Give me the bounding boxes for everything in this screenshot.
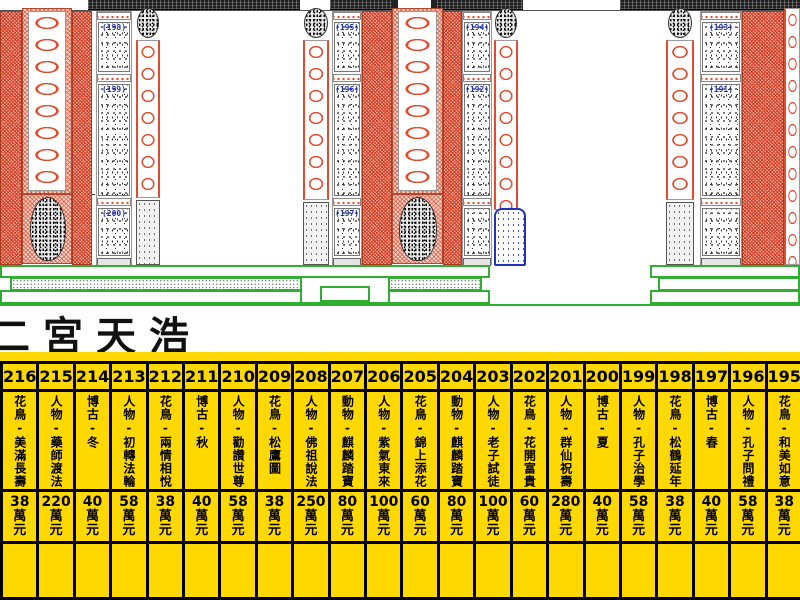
dot-separator: [333, 12, 361, 20]
empty-cell: [221, 544, 254, 591]
item-description: 人物-藥師渡法: [50, 392, 62, 489]
item-price: 80 萬 元: [440, 492, 473, 544]
price-unit-yuan: 元: [414, 524, 427, 538]
empty-cell: [695, 544, 728, 591]
dot-separator: [463, 12, 491, 20]
item-description-cell: 花鳥-美滿長壽: [3, 392, 36, 492]
price-unit-wan: 萬: [159, 510, 172, 524]
item-number: 216: [3, 364, 36, 392]
item-price: 80 萬 元: [331, 492, 364, 544]
item-number: 210: [221, 364, 254, 392]
top-beam: [620, 0, 800, 10]
item-description-cell: 花鳥-松鶴延年: [658, 392, 691, 492]
price-unit-wan: 萬: [523, 510, 536, 524]
carved-capital: [668, 8, 692, 38]
item-price: 280 萬 元: [549, 492, 582, 544]
price-unit-wan: 萬: [778, 510, 791, 524]
table-column: 201 人物-群仙祝壽 280 萬 元: [549, 364, 585, 597]
item-number: 208: [294, 364, 327, 392]
item-number: 206: [367, 364, 400, 392]
price-unit-yuan: 元: [741, 524, 754, 538]
price-number: 38: [665, 494, 684, 510]
empty-cell: [3, 544, 36, 591]
stone-base: [658, 277, 800, 291]
price-unit-yuan: 元: [705, 524, 718, 538]
empty-cell: [185, 544, 218, 591]
oval-chain: [303, 40, 329, 200]
item-price: 100 萬 元: [476, 492, 509, 544]
empty-cell: [258, 544, 291, 591]
panel-label: (197): [335, 209, 359, 219]
item-description-cell: 人物-初轉法輪: [112, 392, 145, 492]
oval-chain: [494, 40, 518, 210]
price-unit-yuan: 元: [523, 524, 536, 538]
price-unit-wan: 萬: [414, 510, 427, 524]
item-description-cell: 博古-秋: [185, 392, 218, 492]
price-number: 58: [629, 494, 648, 510]
price-unit-yuan: 元: [632, 524, 645, 538]
item-description-cell: 花鳥-松鷹圖: [258, 392, 291, 492]
dot-separator: [701, 12, 741, 20]
table-column: 216 花鳥-美滿長壽 38 萬 元: [3, 364, 39, 597]
dot-separator: [333, 74, 361, 82]
price-unit-wan: 萬: [486, 510, 499, 524]
price-unit-yuan: 元: [86, 524, 99, 538]
item-description: 人物-群仙祝壽: [560, 392, 572, 489]
price-unit-yuan: 元: [778, 524, 791, 538]
table-column: 214 博古-冬 40 萬 元: [76, 364, 112, 597]
oval-chain: [136, 40, 160, 198]
table-column: 215 人物-藥師渡法 220 萬 元: [39, 364, 75, 597]
price-unit-wan: 萬: [341, 510, 354, 524]
column-pedestal: [303, 202, 329, 265]
price-unit-yuan: 元: [13, 524, 26, 538]
price-unit-yuan: 元: [450, 524, 463, 538]
item-description: 博古-夏: [596, 392, 608, 489]
top-beam: [88, 0, 300, 10]
item-price: 250 萬 元: [294, 492, 327, 544]
panel-label: (200): [99, 209, 129, 219]
item-number: 196: [731, 364, 764, 392]
item-price: 40 萬 元: [695, 492, 728, 544]
item-description-cell: 動物-麒麟踏寶: [440, 392, 473, 492]
item-description-cell: 博古-夏: [586, 392, 619, 492]
price-unit-wan: 萬: [596, 510, 609, 524]
empty-cell: [586, 544, 619, 591]
price-unit-yuan: 元: [669, 524, 682, 538]
item-description-cell: 人物-勸讚世尊: [221, 392, 254, 492]
price-unit-wan: 萬: [669, 510, 682, 524]
price-unit-yuan: 元: [304, 524, 317, 538]
price-unit-wan: 萬: [450, 510, 463, 524]
item-description-cell: 人物-佛祖說法: [294, 392, 327, 492]
item-description-cell: 花鳥-花開富貴: [513, 392, 546, 492]
carved-panel-column: (198) (199) (200): [96, 11, 132, 265]
item-number: 207: [331, 364, 364, 392]
item-description-cell: 博古-春: [695, 392, 728, 492]
item-description: 博古-冬: [87, 392, 99, 489]
column-base: [392, 194, 443, 264]
table-column: 203 人物-老子試徒 100 萬 元: [476, 364, 512, 597]
price-unit-yuan: 元: [377, 524, 390, 538]
price-number: 40: [192, 494, 211, 510]
table-column: 208 人物-佛祖說法 250 萬 元: [294, 364, 330, 597]
item-price: 58 萬 元: [731, 492, 764, 544]
dot-separator: [333, 198, 361, 206]
oval-chain: [398, 11, 437, 191]
table-column: 206 人物-紫氣東來 100 萬 元: [367, 364, 403, 597]
base-altar: [300, 276, 390, 304]
stone-base: [10, 277, 482, 291]
price-table: 216 花鳥-美滿長壽 38 萬 元 215 人物-藥師渡法 220 萬: [0, 352, 800, 600]
empty-cell: [513, 544, 546, 591]
item-price: 38 萬 元: [258, 492, 291, 544]
carved-capital: [304, 8, 328, 38]
item-number: 201: [549, 364, 582, 392]
price-number: 38: [10, 494, 29, 510]
empty-cell: [622, 544, 655, 591]
item-number: 200: [586, 364, 619, 392]
beam-bracket: [431, 0, 437, 8]
table-column: 195 花鳥-和美如意 38 萬 元: [768, 364, 800, 597]
item-number: 213: [112, 364, 145, 392]
item-description-cell: 人物-藥師渡法: [39, 392, 72, 492]
item-price: 38 萬 元: [149, 492, 182, 544]
table-column: 209 花鳥-松鷹圖 38 萬 元: [258, 364, 294, 597]
base-altar-inner: [320, 286, 370, 302]
price-number: 80: [338, 494, 357, 510]
carved-panel: [702, 208, 740, 256]
price-unit-wan: 萬: [268, 510, 281, 524]
panel-label: (194): [465, 23, 489, 33]
price-number: 58: [738, 494, 757, 510]
item-description-cell: 人物-老子試徒: [476, 392, 509, 492]
item-number: 215: [39, 364, 72, 392]
price-number: 58: [119, 494, 138, 510]
empty-cell: [731, 544, 764, 591]
item-description-cell: 人物-紫氣東來: [367, 392, 400, 492]
item-number: 203: [476, 364, 509, 392]
item-description: 花鳥-兩情相悅: [159, 392, 171, 489]
oval-chain: [666, 40, 694, 200]
table-column: 204 動物-麒麟踏寶 80 萬 元: [440, 364, 476, 597]
item-price: 60 萬 元: [513, 492, 546, 544]
price-unit-yuan: 元: [596, 524, 609, 538]
price-number: 38: [156, 494, 175, 510]
panel-label: (191): [703, 85, 739, 95]
item-price: 220 萬 元: [39, 492, 72, 544]
carved-panel: (199): [98, 84, 130, 196]
table-column: 200 博古-夏 40 萬 元: [586, 364, 622, 597]
item-price: 38 萬 元: [3, 492, 36, 544]
empty-cell: [549, 544, 582, 591]
panel-label: (193): [703, 23, 739, 33]
dot-separator: [701, 74, 741, 82]
item-number: 205: [403, 364, 436, 392]
carved-panel: (193): [702, 22, 740, 72]
price-number: 40: [592, 494, 611, 510]
oval-column: [303, 8, 329, 265]
carved-panel: (200): [98, 208, 130, 256]
table-column: 212 花鳥-兩情相悅 38 萬 元: [149, 364, 185, 597]
empty-cell: [76, 544, 109, 591]
price-number: 38: [774, 494, 793, 510]
table-column: 207 動物-麒麟踏寶 80 萬 元: [331, 364, 367, 597]
price-number: 80: [447, 494, 466, 510]
price-unit-wan: 萬: [232, 510, 245, 524]
item-price: 38 萬 元: [658, 492, 691, 544]
item-description: 人物-孔子問禮: [742, 392, 754, 489]
empty-cell: [39, 544, 72, 591]
empty-cell: [768, 544, 800, 591]
price-number: 220: [41, 494, 70, 510]
price-number: 100: [369, 494, 398, 510]
blue-lion-statue: [494, 208, 526, 266]
pillar-hatch: [0, 11, 22, 265]
top-beam: [330, 0, 392, 10]
item-description-cell: 人物-孔子治學: [622, 392, 655, 492]
beam-bracket: [392, 0, 398, 8]
table-column: 205 花鳥-錦上添花 60 萬 元: [403, 364, 439, 597]
table-column: 210 人物-勸讚世尊 58 萬 元: [221, 364, 257, 597]
table-column: 211 博古-秋 40 萬 元: [185, 364, 221, 597]
dot-separator: [97, 74, 131, 82]
item-description: 花鳥-花開富貴: [523, 392, 535, 489]
carved-panel: (195): [334, 22, 360, 72]
price-unit-yuan: 元: [559, 524, 572, 538]
item-number: 198: [658, 364, 691, 392]
item-number: 199: [622, 364, 655, 392]
item-description: 動物-麒麟踏寶: [451, 392, 463, 489]
empty-cell: [294, 544, 327, 591]
stone-base: [650, 290, 800, 304]
item-description: 花鳥-錦上添花: [414, 392, 426, 489]
price-unit-wan: 萬: [559, 510, 572, 524]
item-description: 人物-老子試徒: [487, 392, 499, 489]
carved-panel: (197): [334, 208, 360, 256]
item-description: 人物-佛祖說法: [305, 392, 317, 489]
item-description-cell: 人物-孔子問禮: [731, 392, 764, 492]
dot-separator: [463, 74, 491, 82]
item-price: 40 萬 元: [185, 492, 218, 544]
oval-column: [666, 8, 694, 265]
table-column: 202 花鳥-花開富貴 60 萬 元: [513, 364, 549, 597]
item-number: 195: [768, 364, 800, 392]
table-column: 198 花鳥-松鶴延年 38 萬 元: [658, 364, 694, 597]
pillar-hatch: [72, 11, 92, 265]
item-description: 人物-孔子治學: [633, 392, 645, 489]
item-description: 人物-勸讚世尊: [232, 392, 244, 489]
price-number: 250: [296, 494, 325, 510]
price-unit-wan: 萬: [741, 510, 754, 524]
price-unit-yuan: 元: [195, 524, 208, 538]
item-price: 40 萬 元: [76, 492, 109, 544]
price-unit-wan: 萬: [122, 510, 135, 524]
carved-capital: [137, 8, 159, 38]
price-number: 100: [478, 494, 507, 510]
table-column: 199 人物-孔子治學 58 萬 元: [622, 364, 658, 597]
item-number: 214: [76, 364, 109, 392]
dot-separator: [97, 12, 131, 20]
price-unit-wan: 萬: [632, 510, 645, 524]
price-unit-yuan: 元: [122, 524, 135, 538]
item-description-cell: 博古-冬: [76, 392, 109, 492]
dot-separator: [97, 198, 131, 206]
item-price: 40 萬 元: [586, 492, 619, 544]
oval-column-clipped: [784, 8, 800, 265]
item-number: 202: [513, 364, 546, 392]
price-unit-yuan: 元: [232, 524, 245, 538]
carved-panel: (194): [464, 22, 490, 72]
price-unit-wan: 萬: [377, 510, 390, 524]
price-number: 40: [702, 494, 721, 510]
item-description: 動物-麒麟踏寶: [341, 392, 353, 489]
lion-medallion: [399, 197, 437, 261]
dot-separator: [701, 198, 741, 206]
empty-cell: [476, 544, 509, 591]
panel-label: (195): [335, 23, 359, 33]
oval-column-wide: [22, 8, 72, 194]
price-unit-wan: 萬: [13, 510, 26, 524]
carved-panel-column: (193) (191): [700, 11, 742, 265]
item-description: 人物-紫氣東來: [378, 392, 390, 489]
item-number: 209: [258, 364, 291, 392]
price-unit-yuan: 元: [50, 524, 63, 538]
pillar-hatch: [362, 11, 392, 265]
empty-cell: [658, 544, 691, 591]
empty-cell: [367, 544, 400, 591]
carved-panel: (192): [464, 84, 490, 196]
item-description: 博古-春: [705, 392, 717, 489]
pillar-hatch: [443, 11, 462, 265]
dot-separator: [463, 198, 491, 206]
oval-chain: [28, 11, 66, 191]
oval-column: [136, 8, 160, 265]
price-unit-yuan: 元: [268, 524, 281, 538]
stone-base: [0, 290, 490, 304]
price-unit-wan: 萬: [50, 510, 63, 524]
panel-label: (196): [335, 85, 359, 95]
item-description-cell: 花鳥-兩情相悅: [149, 392, 182, 492]
column-pedestal: [136, 200, 160, 265]
price-table-grid: 216 花鳥-美滿長壽 38 萬 元 215 人物-藥師渡法 220 萬: [0, 361, 800, 600]
carved-panel: [464, 208, 490, 256]
item-number: 212: [149, 364, 182, 392]
empty-cell: [331, 544, 364, 591]
price-unit-wan: 萬: [195, 510, 208, 524]
item-description-cell: 花鳥-錦上添花: [403, 392, 436, 492]
page-title: 二宮天浩: [0, 304, 390, 352]
item-description: 花鳥-松鶴延年: [669, 392, 681, 489]
table-columns: 216 花鳥-美滿長壽 38 萬 元 215 人物-藥師渡法 220 萬: [3, 364, 800, 597]
carved-urn: [30, 197, 66, 261]
price-unit-wan: 萬: [304, 510, 317, 524]
item-number: 197: [695, 364, 728, 392]
price-unit-wan: 萬: [705, 510, 718, 524]
item-description: 花鳥-松鷹圖: [269, 392, 281, 489]
price-number: 58: [228, 494, 247, 510]
carved-panel-column: (194) (192): [462, 11, 492, 265]
price-unit-yuan: 元: [341, 524, 354, 538]
column-pedestal: [666, 202, 694, 265]
item-price: 38 萬 元: [768, 492, 800, 544]
item-description-cell: 動物-麒麟踏寶: [331, 392, 364, 492]
item-description: 花鳥-和美如意: [778, 392, 790, 489]
carved-panel: (191): [702, 84, 740, 196]
table-column: 196 人物-孔子問禮 58 萬 元: [731, 364, 767, 597]
item-description: 花鳥-美滿長壽: [14, 392, 26, 489]
item-price: 58 萬 元: [112, 492, 145, 544]
item-description: 人物-初轉法輪: [123, 392, 135, 489]
carved-panel: (198): [98, 22, 130, 72]
table-column: 213 人物-初轉法輪 58 萬 元: [112, 364, 148, 597]
item-number: 211: [185, 364, 218, 392]
price-number: 40: [83, 494, 102, 510]
item-description: 博古-秋: [196, 392, 208, 489]
item-description-cell: 花鳥-和美如意: [768, 392, 800, 492]
price-unit-yuan: 元: [159, 524, 172, 538]
price-number: 60: [520, 494, 539, 510]
item-description-cell: 人物-群仙祝壽: [549, 392, 582, 492]
item-price: 58 萬 元: [622, 492, 655, 544]
price-number: 280: [551, 494, 580, 510]
item-price: 60 萬 元: [403, 492, 436, 544]
panel-label: (192): [465, 85, 489, 95]
oval-column-wide: [392, 8, 443, 194]
price-unit-wan: 萬: [86, 510, 99, 524]
carved-capital: [495, 8, 517, 38]
column-base: [22, 194, 72, 264]
price-unit-yuan: 元: [486, 524, 499, 538]
table-column: 197 博古-春 40 萬 元: [695, 364, 731, 597]
facade-drawing: (198) (199) (200) (195) (196) (197): [0, 0, 800, 307]
price-number: 38: [265, 494, 284, 510]
panel-label: (198): [99, 23, 129, 33]
empty-cell: [149, 544, 182, 591]
item-price: 58 萬 元: [221, 492, 254, 544]
carved-panel: (196): [334, 84, 360, 196]
empty-cell: [440, 544, 473, 591]
empty-cell: [403, 544, 436, 591]
pillar-hatch: [742, 11, 784, 265]
carved-panel-column: (195) (196) (197): [332, 11, 362, 265]
item-price: 100 萬 元: [367, 492, 400, 544]
price-number: 60: [410, 494, 429, 510]
item-number: 204: [440, 364, 473, 392]
empty-cell: [112, 544, 145, 591]
panel-label: (199): [99, 85, 129, 95]
